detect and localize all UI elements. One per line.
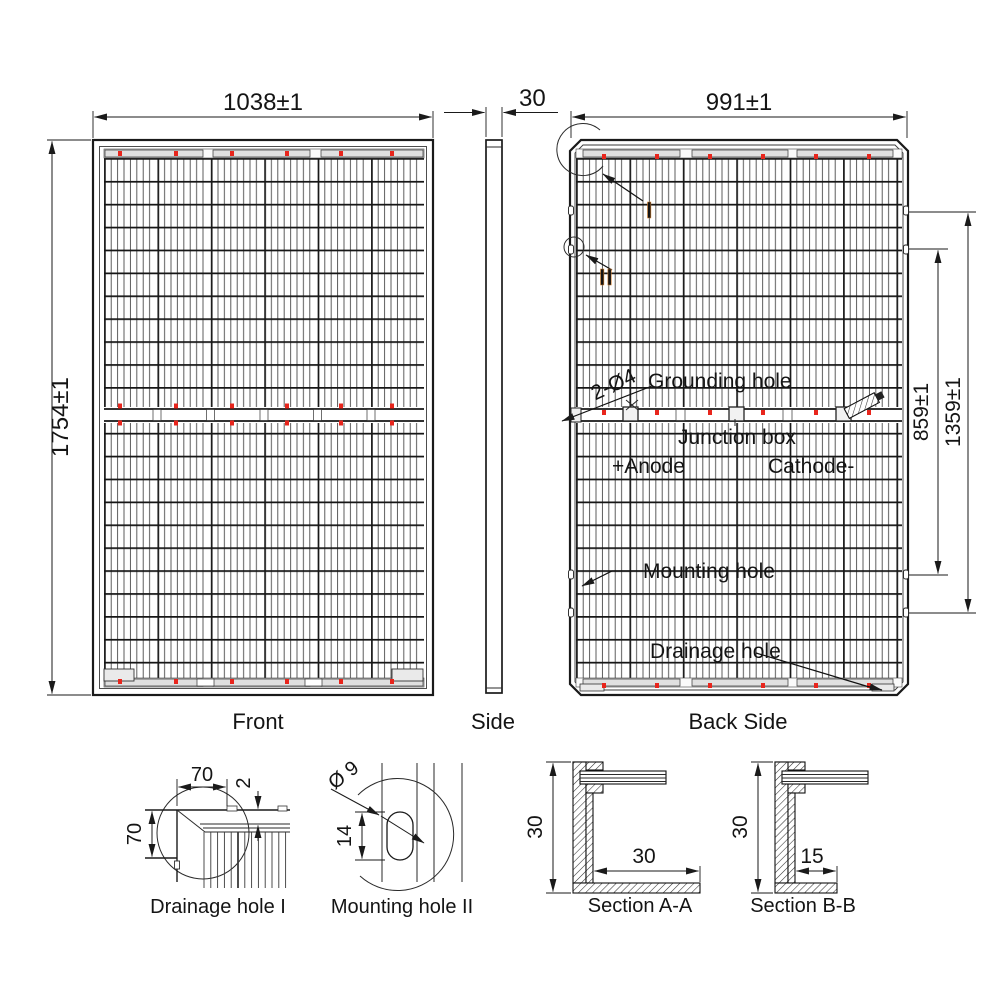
side-thickness-dim: 30 [519,85,546,112]
grounding-hole-label: Grounding hole [648,370,792,393]
junction-box [623,407,638,421]
section-bb-height-dim: 30 [729,815,752,838]
drainage-detail-caption: Drainage hole I [150,896,286,918]
front-height-dim: 1754±1 [47,377,74,457]
glass-stack [580,771,666,784]
front-caption: Front [232,709,283,734]
junction-box [729,407,744,421]
front-cell-grid-upper [104,158,424,408]
back-mount-outer-dim: 1359±1 [942,377,965,447]
mounting-detail-caption: Mounting hole II [331,896,473,918]
section-aa-caption: Section A-A [588,895,693,917]
mounting-slot [387,812,413,860]
side-view: 30 [444,85,558,693]
glass-stack [782,771,868,784]
section-aa-height-dim: 30 [524,815,547,838]
drainage-gap-dim: 2 [233,777,255,788]
drainage-width-dim: 70 [191,764,213,786]
mounting-hole-label: Mounting hole [643,560,775,583]
cathode-label: Cathode- [768,455,854,478]
front-view [93,140,433,695]
section-aa-flange-dim: 30 [632,845,655,868]
drainage-hole-label: Drainage hole [650,640,781,663]
mounting-diameter-dim: Ø 9 [324,757,363,794]
detail-section-aa: 30 30 Section A-A [524,762,700,917]
back-mount-inner-dim: 859±1 [910,383,933,441]
front-width-dim: 1038±1 [223,89,303,116]
view-captions: Front Side Back Side [232,709,787,734]
detail-ref-drainage: I [646,197,652,223]
junction-box-label: Junction box [678,426,796,449]
back-view: I II 2-Ø4 Grounding hole Junction box +A… [557,124,909,695]
detail-mounting-hole: Ø 9 14 Mounting hole II [324,757,473,918]
back-width-dim: 991±1 [706,89,773,116]
mounting-length-dim: 14 [334,825,356,847]
detail-drainage-hole: 70 70 2 Drainage hole I [124,764,290,918]
front-cell-grid-lower [104,422,424,686]
detail-ref-mounting: II [599,264,614,290]
drainage-slot [175,861,180,869]
anode-label: +Anode [612,455,685,478]
solar-panel-drawing: 1038±1 1754±1 30 [0,0,1000,1000]
front-middle-band [104,407,424,423]
side-dimension: 30 [444,85,558,137]
side-caption: Side [471,709,515,734]
section-bb-caption: Section B-B [750,895,856,917]
drainage-height-dim: 70 [124,823,146,845]
back-caption: Back Side [688,709,787,734]
section-bb-flange-dim: 15 [800,845,823,868]
detail-section-bb: 30 15 Section B-B [729,762,868,917]
